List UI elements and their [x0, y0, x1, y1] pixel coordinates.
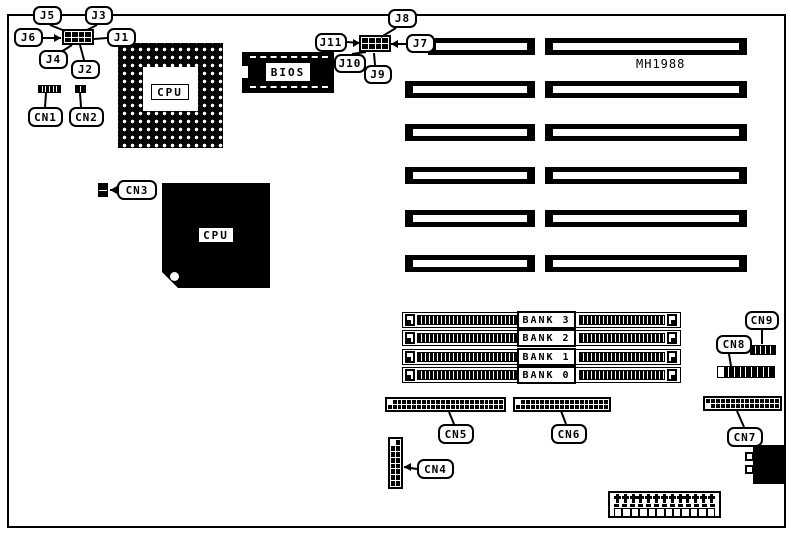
pin-cell [585, 400, 589, 404]
expansion-slot-row2-seg2 [545, 81, 747, 98]
pin-cell [391, 481, 395, 486]
pin-cell [382, 44, 388, 49]
pin-cell [431, 400, 435, 404]
pin-cell [391, 440, 395, 445]
pin-cell [726, 399, 730, 403]
power-header [608, 491, 721, 518]
pin-cell [550, 400, 554, 404]
pin-cell [57, 86, 60, 92]
pin-cell [446, 405, 450, 409]
pin-cell [766, 346, 770, 354]
pin-cell [485, 400, 489, 404]
pin-cell [775, 404, 779, 408]
simm-latch-left [405, 314, 415, 326]
power-header-dash-row [614, 504, 715, 507]
pin-cell [755, 399, 759, 403]
pin-cell [545, 405, 549, 409]
bios-dash-top [250, 56, 328, 58]
expansion-slot-contact [413, 215, 527, 222]
callout-cn9: CN9 [745, 311, 779, 330]
expansion-slot-row5-seg2 [545, 210, 747, 227]
power-pin [669, 494, 676, 503]
pin-cell [391, 452, 395, 457]
pin-cell [480, 405, 484, 409]
pin-cell [721, 399, 725, 403]
power-socket [614, 508, 622, 517]
power-socket [631, 508, 639, 517]
pin-cell [536, 400, 540, 404]
pin-cell [417, 405, 421, 409]
pin-cell [735, 367, 740, 377]
power-pin [684, 494, 691, 503]
pin-cell [407, 400, 411, 404]
power-socket [681, 508, 689, 517]
pin-cell [362, 38, 368, 43]
expansion-slot-contact [553, 43, 739, 50]
pin-cell [724, 367, 729, 377]
power-pin [637, 494, 644, 503]
power-socket [639, 508, 647, 517]
expansion-slot-contact [553, 129, 739, 136]
callout-cn4: CN4 [417, 459, 454, 479]
callout-j3: J3 [85, 6, 113, 25]
pin-cell [726, 404, 730, 408]
pin-cell [599, 405, 603, 409]
bank-label: BANK 0 [517, 366, 576, 384]
expansion-slot-contact [553, 172, 739, 179]
pin-cell [746, 367, 751, 377]
pin-cell [475, 405, 479, 409]
pin-cell [755, 404, 759, 408]
pin-cell [716, 399, 720, 403]
pin-cell [460, 405, 464, 409]
pin-cell [526, 405, 530, 409]
pin-cell [760, 404, 764, 408]
simm-contacts [579, 352, 665, 362]
pin-cell [393, 400, 397, 404]
pin-cell [441, 405, 445, 409]
pin-cell [81, 86, 85, 92]
power-pin [677, 494, 684, 503]
connector-cn4 [388, 437, 403, 489]
callout-j2: J2 [71, 60, 100, 79]
pin-cell [741, 367, 746, 377]
simm-slot: BANK 2 [402, 330, 681, 346]
pin-cell [39, 86, 42, 92]
pin-cell [388, 400, 392, 404]
pin-cell [594, 405, 598, 409]
pin-cell [706, 399, 710, 403]
connector-cn1 [38, 85, 61, 93]
power-socket [665, 508, 673, 517]
pin-cell [565, 400, 569, 404]
pin-cell [446, 400, 450, 404]
expansion-slot-row3-seg1 [405, 124, 535, 141]
pin-cell [456, 405, 460, 409]
pin-cell [362, 44, 368, 49]
callout-cn3: CN3 [117, 180, 157, 200]
pin-cell [396, 464, 400, 469]
pin-cell [521, 400, 525, 404]
pin-cell [79, 38, 85, 43]
expansion-slot-contact [553, 215, 739, 222]
bios-dash-bottom [250, 86, 328, 88]
pin-cell [396, 458, 400, 463]
power-pin [653, 494, 660, 503]
pin-cell [565, 405, 569, 409]
expansion-slot-row6-seg1 [405, 255, 535, 272]
pga-socket-cpu-label: CPU [151, 84, 189, 100]
pin-cell [99, 191, 107, 197]
pin-cell [391, 458, 395, 463]
callout-j9: J9 [364, 65, 392, 84]
callout-j8: J8 [388, 9, 417, 28]
pin-cell [745, 399, 749, 403]
simm-contacts [417, 315, 517, 325]
bank-label: BANK 1 [517, 348, 576, 366]
pin-cell [716, 404, 720, 408]
keyboard-connector [753, 445, 786, 484]
expansion-slot-row5-seg1 [405, 210, 535, 227]
bank-label: BANK 2 [517, 329, 576, 347]
pin-cell [393, 405, 397, 409]
callout-cn1: CN1 [28, 107, 63, 127]
callout-cn2: CN2 [69, 107, 104, 127]
pin-cell [555, 400, 559, 404]
bios-notch [242, 66, 248, 78]
pin-cell [555, 405, 559, 409]
pin-cell [494, 405, 498, 409]
power-socket [707, 508, 715, 517]
simm-latch-left [405, 332, 415, 344]
pin-cell [756, 346, 760, 354]
pin-cell [388, 405, 392, 409]
jumper-block-1 [62, 29, 94, 45]
pin-cell [369, 38, 375, 43]
power-header-pin-row [610, 494, 719, 503]
cpu-chip-label: CPU [198, 227, 234, 243]
pin-cell [761, 346, 765, 354]
pin-cell [85, 32, 91, 37]
power-pin [708, 494, 715, 503]
pin-cell [750, 404, 754, 408]
pin-cell [46, 86, 49, 92]
pin-cell [706, 404, 710, 408]
pin-cell [485, 405, 489, 409]
pin-cell [589, 405, 593, 409]
pin-cell [758, 367, 763, 377]
callout-cn8: CN8 [716, 335, 752, 354]
simm-slot: BANK 1 [402, 349, 681, 365]
simm-latch-right [667, 314, 677, 326]
expansion-slot-row4-seg1 [405, 167, 535, 184]
pin-cell [499, 400, 503, 404]
cpu-chip-pin1-dot [170, 272, 179, 281]
power-socket [673, 508, 681, 517]
simm-contacts [579, 315, 665, 325]
pin-cell [575, 400, 579, 404]
pin-cell [427, 405, 431, 409]
bank-label: BANK 3 [517, 311, 576, 329]
pin-cell [540, 400, 544, 404]
jumper-block-2 [359, 35, 391, 52]
pin-cell [765, 399, 769, 403]
callout-j4: J4 [39, 50, 68, 69]
pin-cell [99, 184, 107, 190]
pin-cell [412, 405, 416, 409]
simm-contacts [417, 352, 517, 362]
pin-cell [526, 400, 530, 404]
pin-cell [599, 400, 603, 404]
pin-cell [718, 367, 723, 377]
simm-latch-left [405, 351, 415, 363]
pin-cell [43, 86, 46, 92]
connector-cn2 [75, 85, 86, 93]
expansion-slot-contact [413, 260, 527, 267]
pin-cell [770, 404, 774, 408]
pin-cell [499, 405, 503, 409]
pin-cell [771, 346, 775, 354]
pin-cell [391, 446, 395, 451]
pin-cell [391, 469, 395, 474]
pin-cell [521, 405, 525, 409]
expansion-slot-contact [413, 86, 527, 93]
pin-cell [376, 38, 382, 43]
pin-cell [50, 86, 53, 92]
pin-cell [589, 400, 593, 404]
power-socket [622, 508, 630, 517]
pin-cell [451, 400, 455, 404]
pin-cell [516, 405, 520, 409]
keyboard-connector-tab [745, 452, 754, 461]
simm-slot: BANK 0 [402, 367, 681, 383]
pin-cell [721, 404, 725, 408]
callout-j1: J1 [107, 28, 136, 47]
expansion-slot-contact [553, 86, 739, 93]
power-pin [692, 494, 699, 503]
pin-cell [382, 38, 388, 43]
power-socket [690, 508, 698, 517]
pin-cell [369, 44, 375, 49]
pin-cell [752, 367, 757, 377]
pin-cell [540, 405, 544, 409]
pin-cell [765, 404, 769, 408]
pin-cell [396, 452, 400, 457]
pin-cell [560, 405, 564, 409]
expansion-slot-row6-seg2 [545, 255, 747, 272]
pin-cell [451, 405, 455, 409]
pin-cell [436, 400, 440, 404]
pin-cell [407, 405, 411, 409]
simm-contacts [579, 333, 665, 343]
power-header-socket-row [610, 508, 719, 517]
callout-j6: J6 [14, 28, 43, 47]
pin-cell [736, 404, 740, 408]
pin-cell [396, 469, 400, 474]
board-model-text: MH1988 [636, 57, 685, 71]
callout-j10: J10 [334, 54, 366, 73]
connector-cn5 [385, 397, 506, 412]
pin-cell [54, 86, 57, 92]
callout-j11: J11 [315, 33, 347, 52]
pin-cell [402, 400, 406, 404]
pin-cell [65, 38, 71, 43]
pin-cell [398, 400, 402, 404]
pin-cell [441, 400, 445, 404]
pin-cell [531, 405, 535, 409]
pin-cell [65, 32, 71, 37]
pin-cell [741, 399, 745, 403]
pin-cell [396, 481, 400, 486]
pin-cell [550, 405, 554, 409]
motherboard-diagram: CPU CPU BIOS MH1988 BANK 3BANK 2BANK 1BA… [0, 0, 791, 537]
pin-cell [741, 404, 745, 408]
pin-cell [560, 400, 564, 404]
pin-cell [422, 400, 426, 404]
pin-cell [585, 405, 589, 409]
power-pin [700, 494, 707, 503]
simm-latch-right [667, 332, 677, 344]
expansion-slot-contact [553, 260, 739, 267]
pin-cell [580, 400, 584, 404]
pin-cell [750, 399, 754, 403]
pin-cell [470, 400, 474, 404]
pin-cell [594, 400, 598, 404]
pin-cell [398, 405, 402, 409]
pin-cell [604, 400, 608, 404]
connector-cn3 [98, 183, 108, 197]
power-socket [656, 508, 664, 517]
pin-cell [764, 367, 769, 377]
pin-cell [76, 86, 80, 92]
pin-cell [465, 400, 469, 404]
pin-cell [494, 400, 498, 404]
simm-contacts [417, 370, 517, 380]
pin-cell [580, 405, 584, 409]
connector-cn8 [717, 366, 775, 378]
pin-cell [480, 400, 484, 404]
expansion-slot-contact [436, 43, 527, 50]
expansion-slot-contact [413, 172, 527, 179]
keyboard-connector-tab [745, 465, 754, 474]
expansion-slot-contact [413, 129, 527, 136]
pin-cell [72, 32, 78, 37]
pin-cell [575, 405, 579, 409]
pin-cell [72, 38, 78, 43]
expansion-slot-row2-seg1 [405, 81, 535, 98]
pin-cell [736, 399, 740, 403]
bios-label: BIOS [265, 62, 311, 82]
pin-cell [456, 400, 460, 404]
pin-cell [745, 404, 749, 408]
callout-cn7: CN7 [727, 427, 763, 447]
simm-latch-right [667, 351, 677, 363]
pin-cell [465, 405, 469, 409]
power-pin [630, 494, 637, 503]
pin-cell [731, 399, 735, 403]
pin-cell [475, 400, 479, 404]
simm-latch-left [405, 369, 415, 381]
pin-cell [775, 399, 779, 403]
pin-cell [79, 32, 85, 37]
power-pin [645, 494, 652, 503]
pin-cell [731, 404, 735, 408]
pin-cell [460, 400, 464, 404]
pin-cell [412, 400, 416, 404]
callout-j5: J5 [33, 6, 62, 25]
power-pin [614, 494, 621, 503]
pin-cell [570, 400, 574, 404]
callout-cn5: CN5 [438, 424, 474, 444]
connector-cn7 [703, 396, 782, 411]
expansion-slot-row3-seg2 [545, 124, 747, 141]
power-pin [622, 494, 629, 503]
pin-cell [536, 405, 540, 409]
pin-cell [531, 400, 535, 404]
pin-cell [489, 400, 493, 404]
pin-cell [489, 405, 493, 409]
pin-cell [711, 404, 715, 408]
callout-cn6: CN6 [551, 424, 587, 444]
pin-cell [470, 405, 474, 409]
pin-cell [417, 400, 421, 404]
cpu-chip: CPU [162, 183, 270, 288]
pin-cell [516, 400, 520, 404]
pin-cell [769, 367, 774, 377]
pin-cell [770, 399, 774, 403]
pin-cell [604, 405, 608, 409]
pin-cell [391, 475, 395, 480]
connector-cn6 [513, 397, 611, 412]
pin-cell [422, 405, 426, 409]
pin-cell [760, 399, 764, 403]
pin-cell [427, 400, 431, 404]
pin-cell [376, 44, 382, 49]
pin-cell [436, 405, 440, 409]
pin-cell [85, 38, 91, 43]
pga-cpu-socket: CPU [118, 43, 223, 148]
pin-cell [396, 440, 400, 445]
callout-j7: J7 [406, 34, 435, 53]
power-pin [661, 494, 668, 503]
pin-cell [396, 475, 400, 480]
simm-slot: BANK 3 [402, 312, 681, 328]
pin-cell [729, 367, 734, 377]
power-socket [698, 508, 706, 517]
simm-contacts [417, 333, 517, 343]
power-socket [648, 508, 656, 517]
pin-cell [431, 405, 435, 409]
pin-cell [402, 405, 406, 409]
expansion-slot-row4-seg2 [545, 167, 747, 184]
pin-cell [396, 446, 400, 451]
simm-latch-right [667, 369, 677, 381]
pin-cell [711, 399, 715, 403]
pin-cell [391, 464, 395, 469]
connector-cn9 [750, 345, 776, 355]
expansion-slot-row1-seg2 [545, 38, 747, 55]
expansion-slot-row1-seg1 [428, 38, 535, 55]
pin-cell [545, 400, 549, 404]
bios-chip: BIOS [242, 52, 334, 93]
simm-contacts [579, 370, 665, 380]
pin-cell [570, 405, 574, 409]
